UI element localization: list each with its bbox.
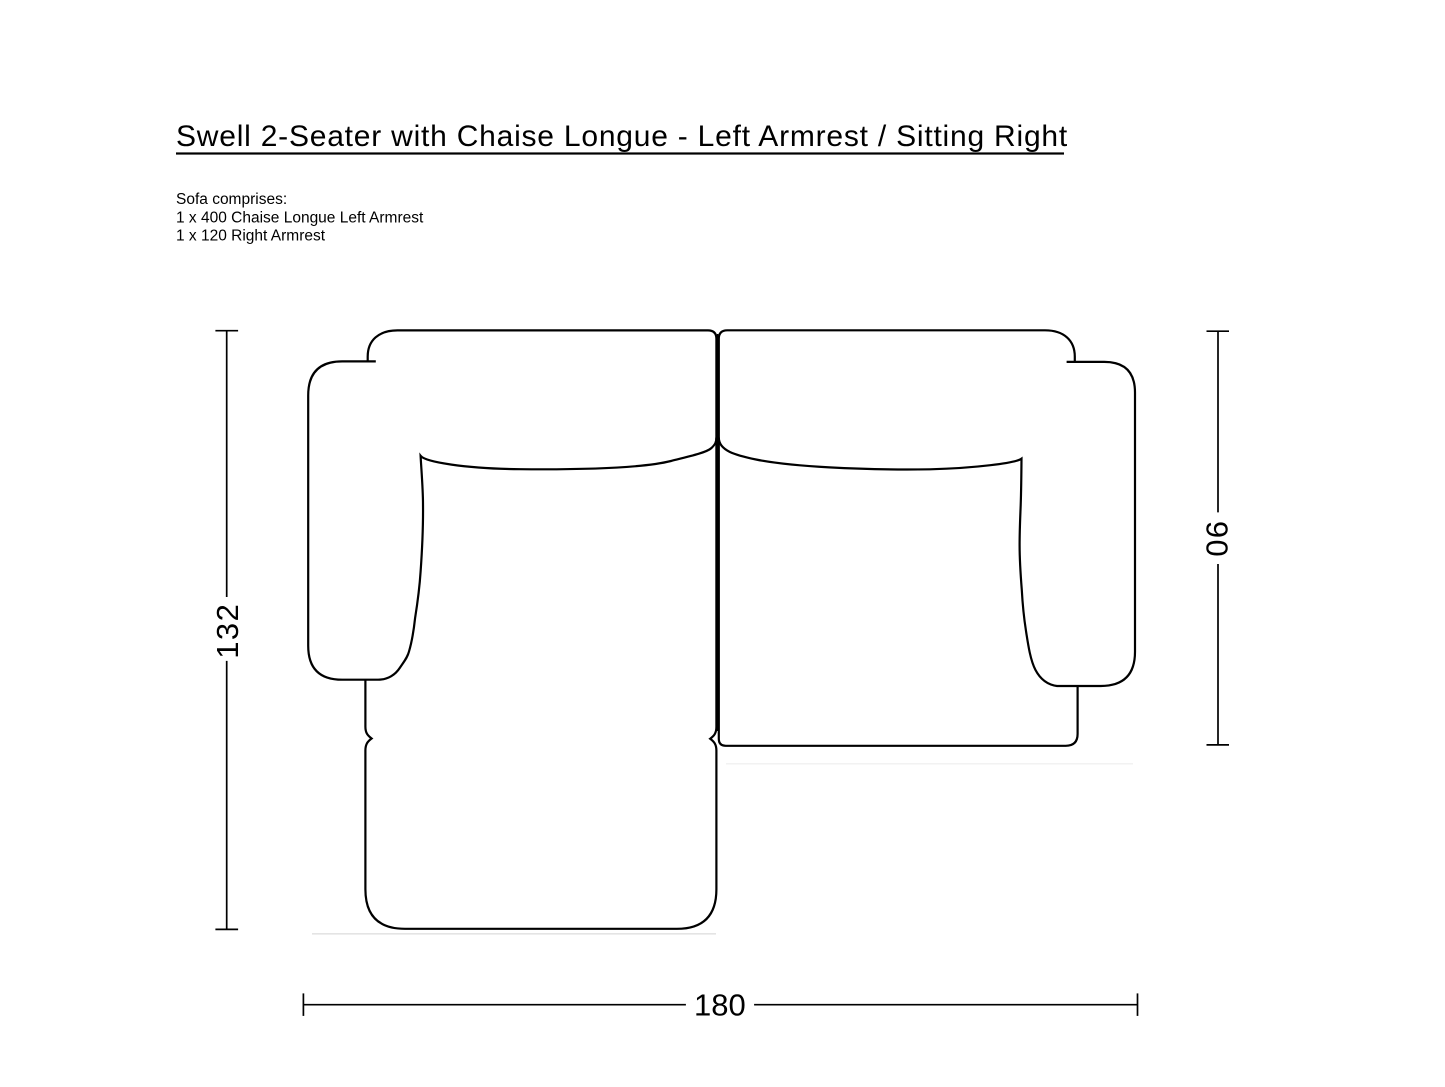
svg-text:132: 132 — [210, 603, 245, 659]
svg-text:1 x 400 Chaise Longue Left Arm: 1 x 400 Chaise Longue Left Armrest — [176, 209, 424, 226]
svg-text:1 x 120 Right Armrest: 1 x 120 Right Armrest — [176, 227, 326, 244]
svg-text:Swell 2-Seater with Chaise Lon: Swell 2-Seater with Chaise Longue - Left… — [176, 120, 1068, 153]
svg-text:Sofa comprises:: Sofa comprises: — [176, 191, 287, 208]
svg-text:90: 90 — [1200, 521, 1235, 558]
svg-text:180: 180 — [694, 987, 746, 1022]
